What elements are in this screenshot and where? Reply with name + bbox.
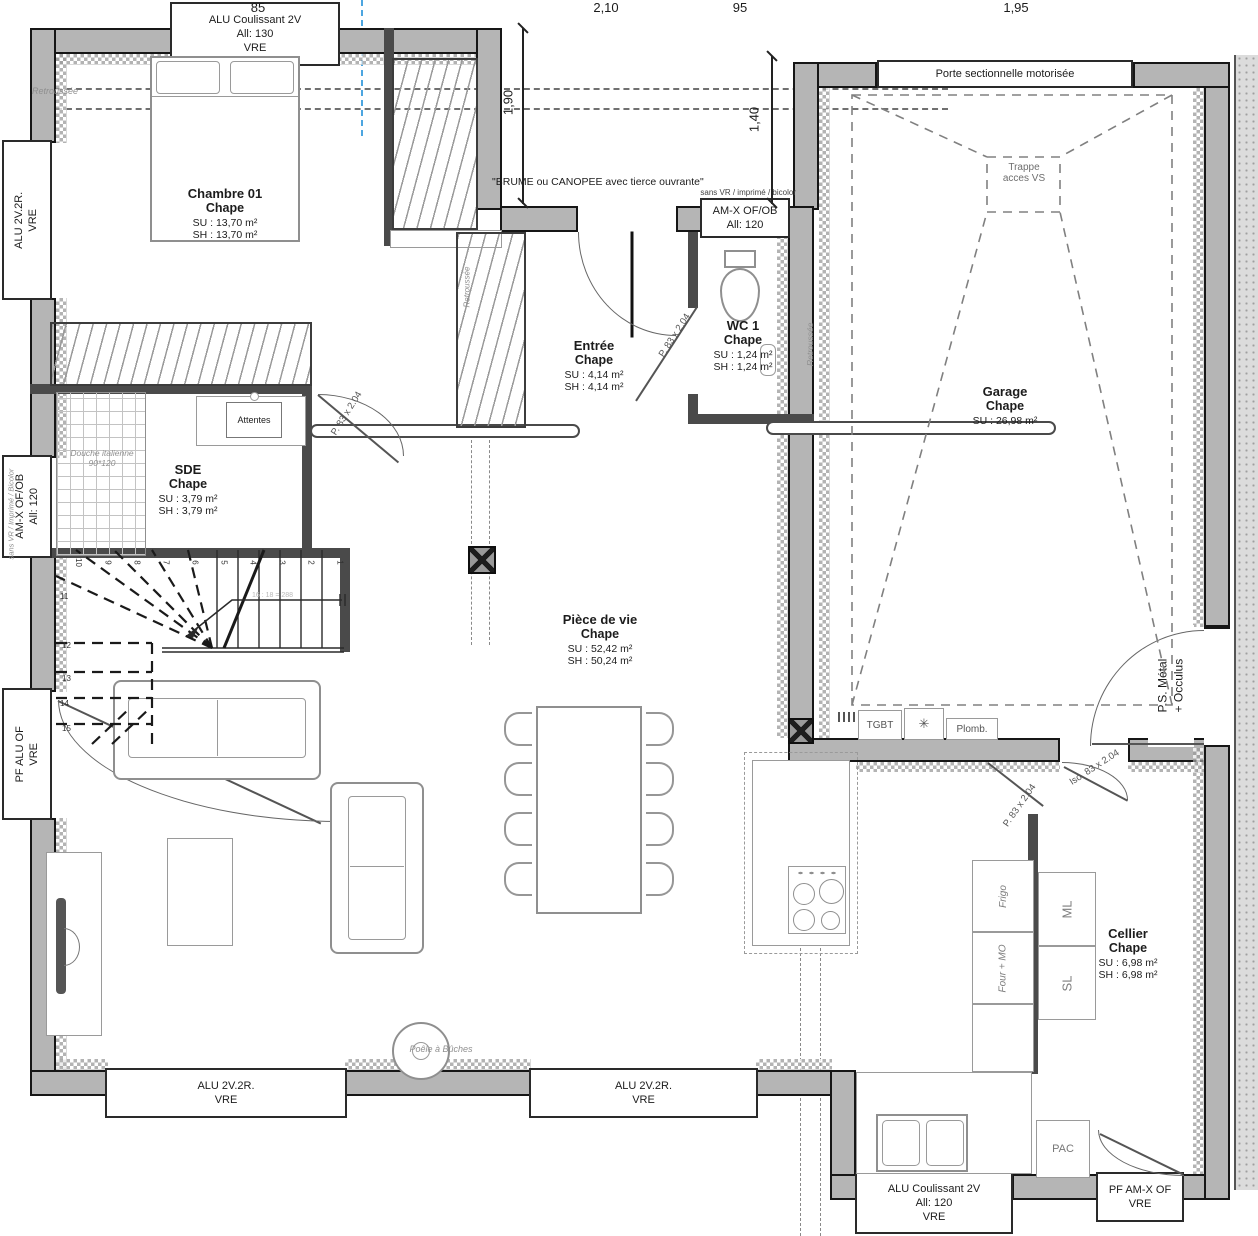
window-bottom-center: ALU 2V.2R. VRE xyxy=(529,1068,758,1118)
stair-number: 13 xyxy=(62,674,71,683)
room-finish: Chape xyxy=(169,477,207,491)
attentes-label: Attentes xyxy=(237,415,270,425)
sofa-back-line xyxy=(348,796,406,940)
trappe-line: acces VS xyxy=(988,173,1060,184)
oven-label: Four + MO xyxy=(997,944,1008,992)
chair xyxy=(504,712,532,746)
knob-row xyxy=(795,870,841,876)
poele-label: Poêle à Bûches xyxy=(376,1044,506,1054)
window-label: All: 120 xyxy=(27,474,41,539)
window-label: VRE xyxy=(244,41,267,55)
retroussee-label: Retroussée xyxy=(32,86,78,96)
stair-number: 7 xyxy=(162,560,171,564)
cabinet-box xyxy=(972,1004,1034,1072)
floor-plan: ALU Coulissant 2V All: 130 VRE ALU 2V.2R… xyxy=(0,0,1258,1236)
window-left-bottom: PF ALU OF VRE xyxy=(2,688,52,820)
door-swing-arc xyxy=(1098,1130,1184,1176)
stair-number: 10 xyxy=(74,558,83,567)
dim-190: 1,90 xyxy=(501,83,516,123)
wall-liner xyxy=(756,1059,832,1070)
room-wc: WC 1 Chape SU : 1,24 m² SH : 1,24 m² xyxy=(697,318,789,373)
wall xyxy=(1204,745,1230,1200)
washer-label: ML xyxy=(1060,900,1075,918)
wall-liner xyxy=(1193,748,1204,1174)
dim-line-vertical xyxy=(771,56,773,204)
toilet-bowl xyxy=(720,268,760,322)
sink-basin xyxy=(926,1120,964,1166)
door-label: Porte sectionnelle motorisée xyxy=(936,67,1075,81)
brume-note: "BRUME ou CANOPEE avec tierce ouvrante" xyxy=(492,176,752,188)
wall xyxy=(500,206,578,232)
vmc-icon xyxy=(919,715,930,733)
room-su: SU : 1,24 m² xyxy=(714,349,773,361)
window-label: VRE xyxy=(27,726,41,782)
dim-top: 95 xyxy=(722,0,758,15)
room-sh: SH : 6,98 m² xyxy=(1099,969,1158,981)
room-garage: Garage Chape SU : 26,98 m² xyxy=(942,384,1068,427)
room-name: Cellier xyxy=(1108,926,1148,941)
dim-top: 1,95 xyxy=(994,0,1038,15)
room-entree: Entrée Chape SU : 4,14 m² SH : 4,14 m² xyxy=(538,338,650,393)
room-sh: SH : 4,14 m² xyxy=(565,381,624,393)
room-su: SU : 4,14 m² xyxy=(565,369,624,381)
trappe-line: Trappe xyxy=(988,162,1060,173)
room-name: Pièce de vie xyxy=(563,612,637,627)
retroussee-label: Retroussée xyxy=(463,238,472,308)
fridge-label: Frigo xyxy=(997,885,1008,908)
sink-basin xyxy=(882,1120,920,1166)
wall-liner xyxy=(56,54,67,143)
stair-number: 1 xyxy=(336,560,345,564)
window-label: All: 120 xyxy=(916,1196,953,1210)
toilet-tank xyxy=(724,250,756,268)
wall xyxy=(788,206,814,746)
room-name: Entrée xyxy=(574,338,614,353)
tgbt-label: TGBT xyxy=(867,720,894,731)
window-bottom-right: PF AM-X OF VRE xyxy=(1096,1172,1184,1222)
room-su: SU : 13,70 m² xyxy=(193,217,258,229)
plomb-label: Plomb. xyxy=(956,724,987,735)
wall xyxy=(676,206,702,232)
wardrobe-hatch xyxy=(50,322,312,386)
burner xyxy=(819,879,844,904)
stair-number: 11 xyxy=(60,592,68,601)
dim-top: 2,10 xyxy=(584,0,628,15)
stair-number: 3 xyxy=(278,560,287,564)
burner xyxy=(821,911,840,930)
wall-liner xyxy=(1128,762,1204,772)
room-finish: Chape xyxy=(986,399,1024,413)
wall-liner xyxy=(856,762,1060,772)
coil-symbol xyxy=(838,712,858,722)
room-name: WC 1 xyxy=(727,318,760,333)
room-su: SU : 6,98 m² xyxy=(1099,957,1158,969)
room-sh: SH : 1,24 m² xyxy=(714,361,773,373)
axis-line xyxy=(471,440,472,645)
window-bottom-left: ALU 2V.2R. VRE xyxy=(105,1068,347,1118)
room-sde: SDE Chape SU : 3,79 m² SH : 3,79 m² xyxy=(132,462,244,517)
window-wc: AM-X OF/OB All: 120 xyxy=(700,198,790,238)
wall xyxy=(793,62,819,210)
wall-liner xyxy=(56,1059,108,1070)
chair xyxy=(504,762,532,796)
room-finish: Chape xyxy=(206,201,244,215)
window-label: PF AM-X OF xyxy=(1109,1183,1171,1197)
window-label: VRE xyxy=(215,1093,238,1107)
partition-wall xyxy=(688,232,698,308)
garage-side-door-gap xyxy=(1204,627,1230,747)
tgbt-box: TGBT xyxy=(858,710,902,740)
wall xyxy=(30,1070,108,1096)
stair-number: 9 xyxy=(104,560,113,564)
pillow xyxy=(156,61,220,94)
stair-number: 4 xyxy=(249,560,258,564)
window-label: VRE xyxy=(27,191,41,248)
window-note: sans VR / Imprimé / Bicolor xyxy=(7,450,16,560)
room-sh: SH : 50,24 m² xyxy=(568,655,633,667)
dim-140: 1,40 xyxy=(747,100,762,140)
window-label: VRE xyxy=(1129,1197,1152,1211)
room-name: Garage xyxy=(983,384,1028,399)
wall xyxy=(756,1070,832,1096)
structural-post xyxy=(788,718,814,744)
room-chambre: Chambre 01 Chape SU : 13,70 m² SH : 13,7… xyxy=(162,186,288,241)
window-label: ALU 2V.2R. xyxy=(197,1079,254,1093)
window-label: ALU Coulissant 2V xyxy=(888,1182,980,1196)
window-label: AM-X OF/OB xyxy=(713,204,778,218)
room-sh: SH : 3,79 m² xyxy=(159,505,218,517)
room-su: SU : 3,79 m² xyxy=(159,493,218,505)
stair-number: 8 xyxy=(133,560,142,564)
room-finish: Chape xyxy=(581,627,619,641)
room-su: SU : 26,98 m² xyxy=(973,415,1038,427)
chair xyxy=(504,812,532,846)
burner xyxy=(793,909,815,931)
room-su: SU : 52,42 m² xyxy=(568,643,633,655)
window-cellier-bottom: ALU Coulissant 2V All: 120 VRE xyxy=(855,1172,1013,1234)
blue-axis-line xyxy=(361,0,363,136)
room-cellier: Cellier Chape SU : 6,98 m² SH : 6,98 m² xyxy=(1086,926,1170,981)
chair xyxy=(646,712,674,746)
stair-number: 12 xyxy=(62,641,71,650)
window-label: All: 130 xyxy=(237,27,274,41)
window-label: VRE xyxy=(923,1210,946,1224)
coffee-table xyxy=(167,838,233,946)
room-name: SDE xyxy=(175,462,202,477)
blanket-line xyxy=(152,96,298,97)
wall-liner xyxy=(777,232,788,738)
chair xyxy=(646,812,674,846)
room-piece-de-vie: Pièce de vie Chape SU : 52,42 m² SH : 50… xyxy=(536,612,664,667)
room-finish: Chape xyxy=(575,353,613,367)
pac-box: PAC xyxy=(1036,1120,1090,1178)
window-left-top: ALU 2V.2R. VRE xyxy=(2,140,52,300)
douche-line: Douche italienne xyxy=(52,448,152,458)
fridge-box: Frigo xyxy=(972,860,1034,932)
attentes-box: Attentes xyxy=(226,402,282,438)
dining-table xyxy=(536,706,642,914)
window-label: ALU 2V.2R. xyxy=(13,191,27,248)
axis-line xyxy=(489,440,490,645)
cooktop xyxy=(788,866,846,934)
pillow xyxy=(230,61,294,94)
chair xyxy=(646,762,674,796)
door-swing-arc xyxy=(578,232,676,336)
door-leaf xyxy=(1092,743,1204,745)
chair xyxy=(504,862,532,896)
room-finish: Chape xyxy=(1109,941,1147,955)
stair-number: 14 xyxy=(60,699,69,708)
stair-number: 5 xyxy=(220,560,229,564)
closet-hatch xyxy=(392,58,478,230)
pac-label: PAC xyxy=(1052,1143,1074,1155)
room-name: Chambre 01 xyxy=(188,186,262,201)
structural-post xyxy=(468,546,496,574)
wall xyxy=(830,1174,858,1200)
window-label: VRE xyxy=(632,1093,655,1107)
wall xyxy=(1204,62,1230,627)
wall-liner xyxy=(819,88,830,738)
dim-top: 85 xyxy=(238,0,278,15)
adjoining-hatch xyxy=(1234,55,1258,1190)
retroussee-label: Retroussée xyxy=(805,294,815,366)
faucet-icon xyxy=(250,392,259,401)
window-label: ALU 2V.2R. xyxy=(615,1079,672,1093)
wall-liner xyxy=(1193,88,1204,627)
room-sh: SH : 13,70 m² xyxy=(193,229,258,241)
wall xyxy=(1133,62,1230,88)
stair-number: 6 xyxy=(191,560,200,564)
stair-number: 2 xyxy=(307,560,316,564)
staircase xyxy=(52,548,352,748)
trappe-label: Trappe acces VS xyxy=(988,162,1060,184)
stair-note: 16 : 18 = 288 xyxy=(252,592,293,599)
plomb-box: Plomb. xyxy=(946,718,998,740)
room-finish: Chape xyxy=(724,333,762,347)
stair-number: 15 xyxy=(62,724,71,733)
door-swing-arc xyxy=(318,394,404,456)
window-label: PF ALU OF xyxy=(13,726,27,782)
chair xyxy=(646,862,674,896)
window-label: All: 120 xyxy=(727,218,764,232)
oven-box: Four + MO xyxy=(972,932,1034,1004)
burner xyxy=(793,883,815,905)
garage-sectional-door: Porte sectionnelle motorisée xyxy=(877,60,1133,88)
dryer-label: SL xyxy=(1060,975,1075,991)
dim-line-vertical xyxy=(522,28,524,204)
sofa-cushion-line xyxy=(350,866,404,867)
